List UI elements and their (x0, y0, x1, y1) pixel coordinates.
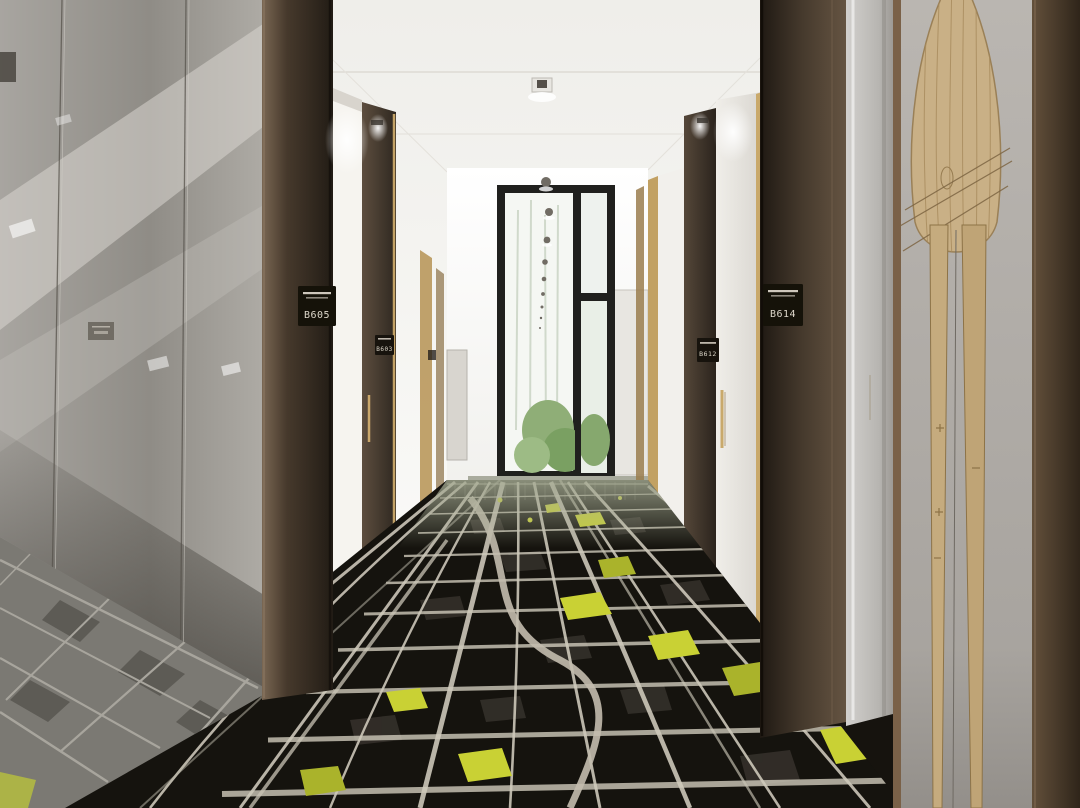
room-plate-far-left (428, 350, 436, 360)
soffit-spot-right (697, 118, 708, 123)
mirror-plate-reflection-top (0, 52, 16, 82)
mirror-plate-reflection (88, 322, 114, 340)
panel-frame-right (1032, 0, 1080, 808)
window-tree-right (578, 414, 610, 466)
room-number: B603 (376, 346, 392, 353)
room-number: B614 (770, 309, 796, 320)
window-mullion-h (581, 295, 607, 301)
room-plate-left-near: B605 (298, 286, 336, 326)
corridor-scene: B603 B612 (0, 0, 1080, 808)
right-column-1: B614 (760, 0, 846, 738)
glass-panel-right (846, 0, 893, 726)
wood-art-panel (893, 0, 1080, 808)
panel-frame-left (893, 0, 901, 808)
room-plate-left-far: B603 (375, 335, 394, 355)
room-number: B612 (699, 350, 717, 358)
window-pane-top-right (581, 193, 607, 293)
room-plate-right-near: B614 (763, 284, 803, 326)
window-mullion-v (575, 193, 581, 473)
soffit-spot-left (371, 120, 383, 125)
left-column-1: B605 (262, 0, 336, 700)
hotel-corridor-render: B603 B612 (0, 0, 1080, 808)
room-number: B605 (304, 310, 330, 321)
far-left-door (447, 350, 467, 460)
room-plate-right-far: B612 (697, 338, 719, 362)
